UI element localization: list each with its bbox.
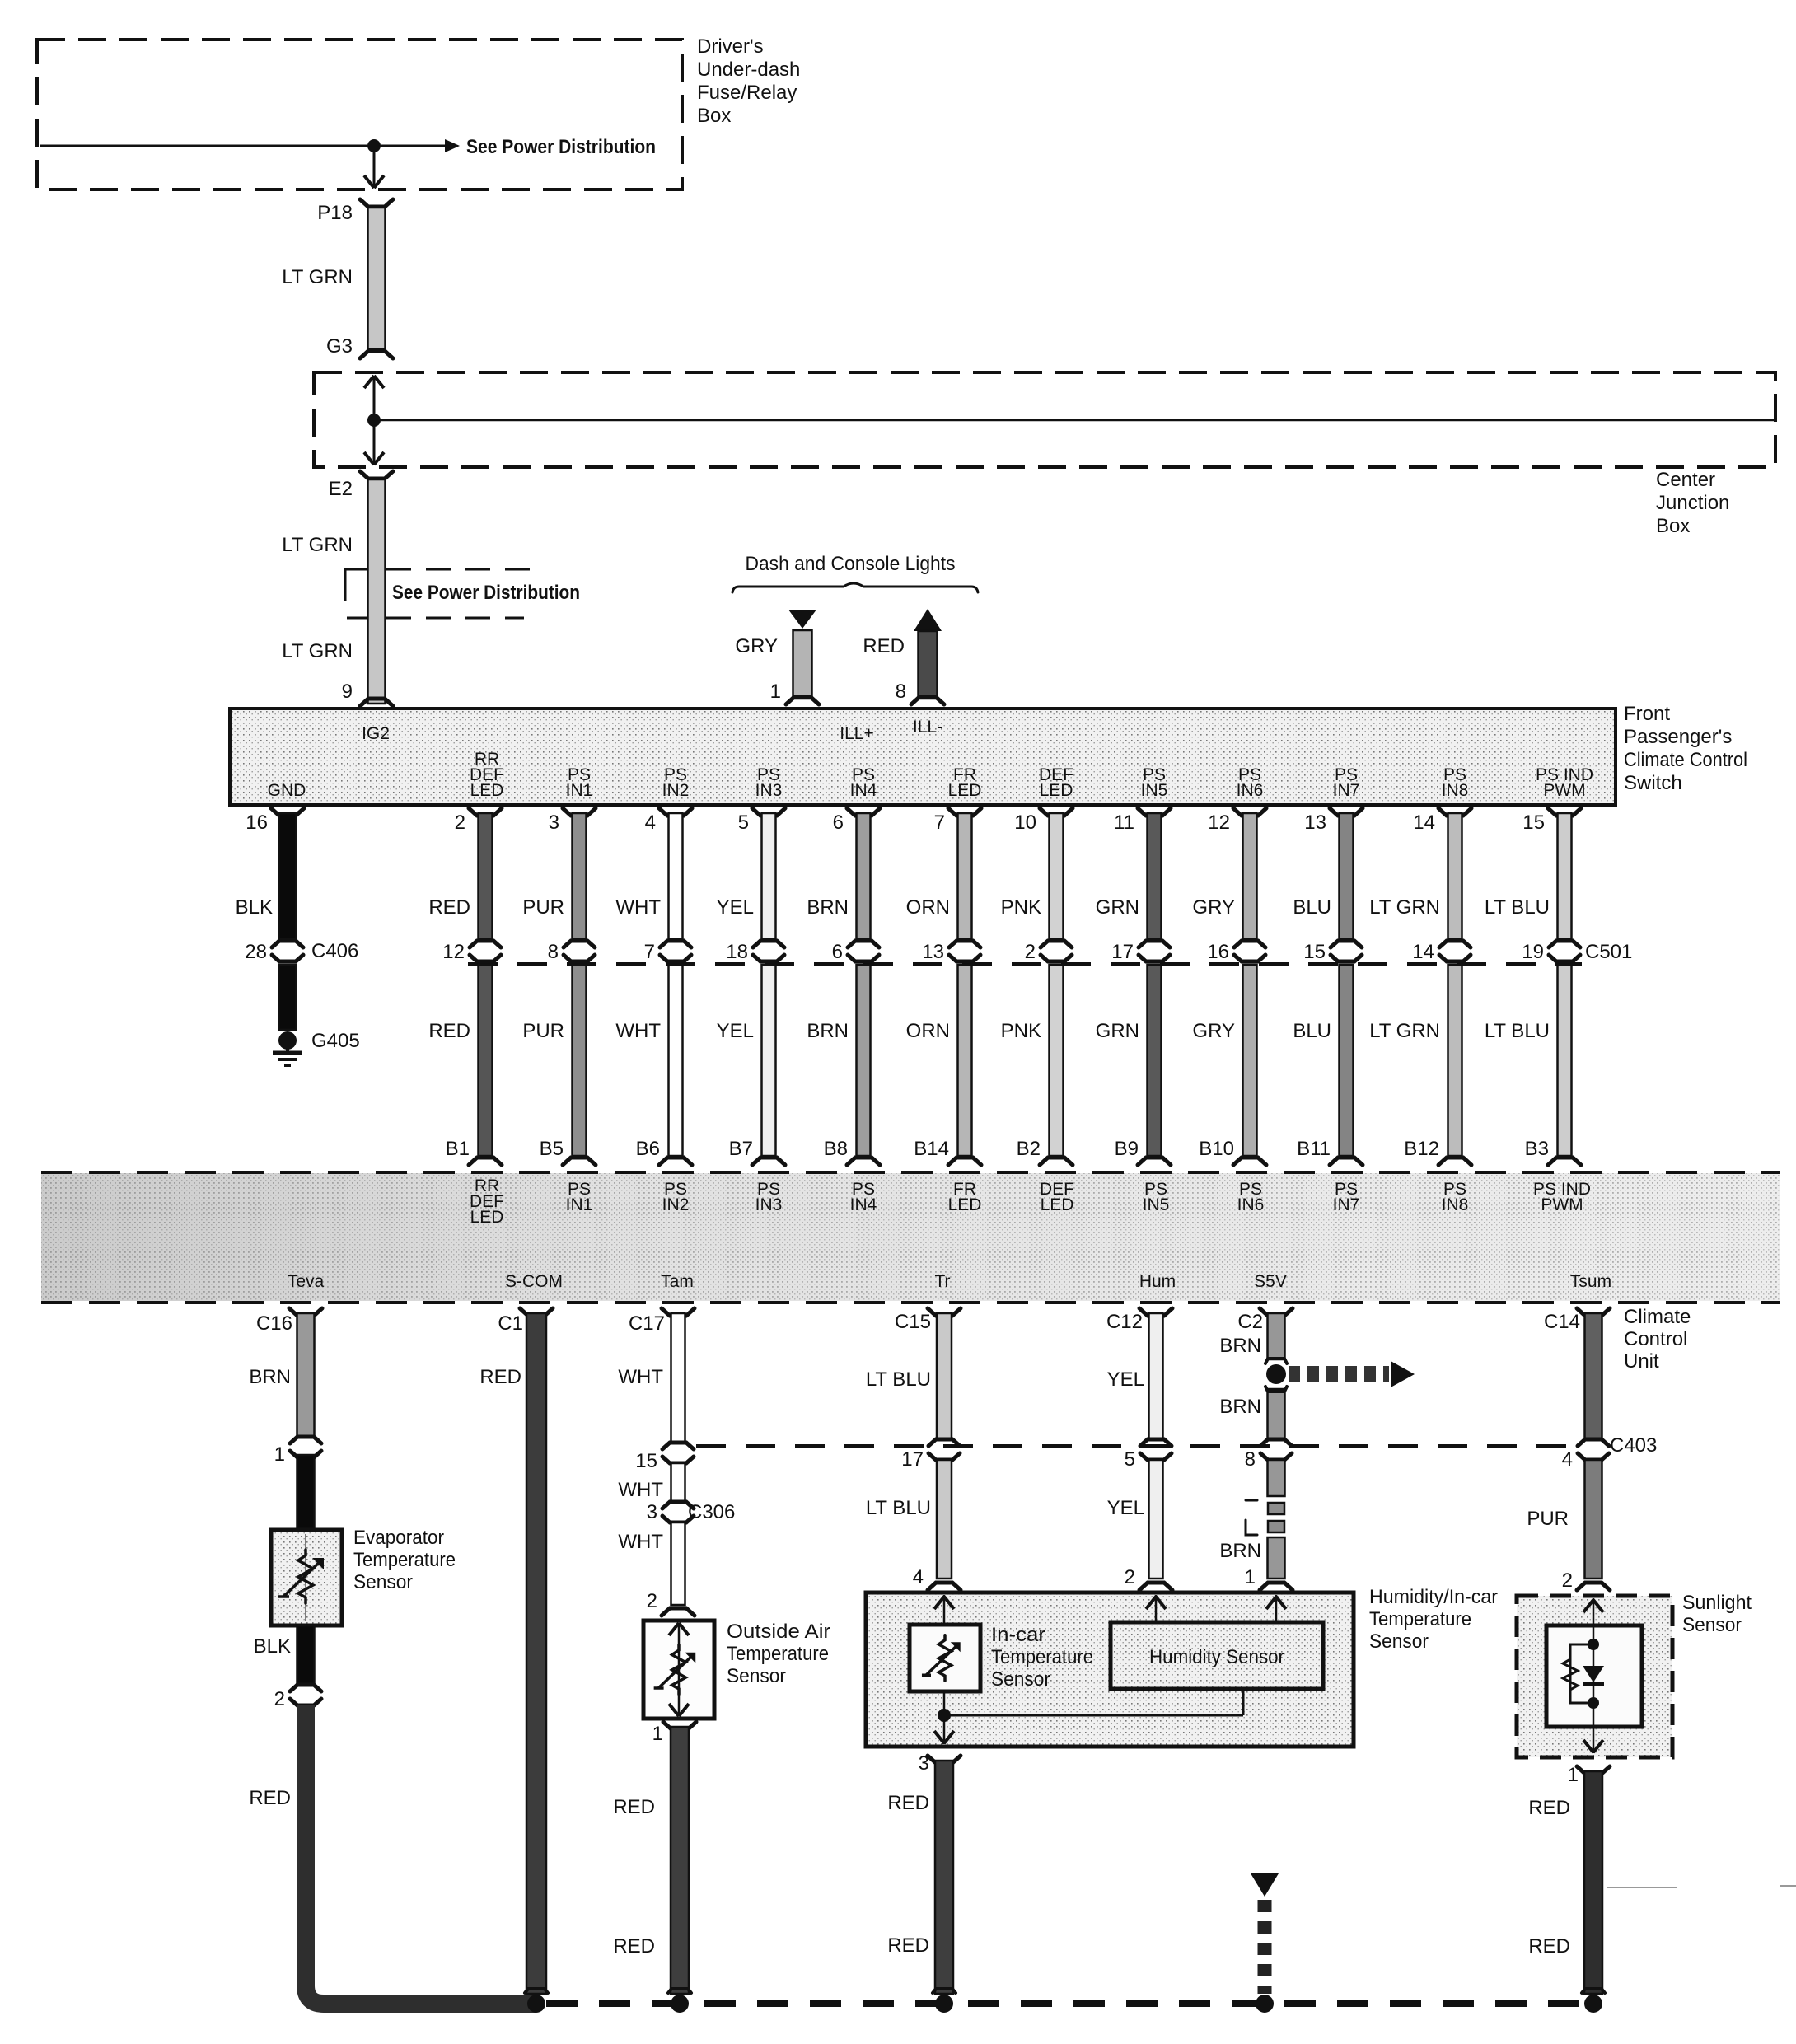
svg-text:5: 5	[738, 812, 749, 834]
svg-text:B5: B5	[540, 1138, 564, 1160]
svg-text:2: 2	[455, 812, 465, 834]
svg-text:BRN: BRN	[249, 1366, 291, 1388]
svg-text:Outside Air: Outside Air	[727, 1621, 830, 1643]
svg-text:RED: RED	[1528, 1935, 1570, 1957]
svg-text:Temperature: Temperature	[1369, 1608, 1471, 1630]
svg-text:GRN: GRN	[1096, 1020, 1139, 1042]
svg-text:2: 2	[1562, 1569, 1573, 1592]
svg-text:WHT: WHT	[618, 1366, 663, 1388]
svg-text:Tsum: Tsum	[1570, 1272, 1611, 1291]
svg-text:Box: Box	[1656, 515, 1690, 537]
svg-text:RED: RED	[249, 1787, 291, 1809]
svg-text:B8: B8	[824, 1138, 848, 1160]
svg-text:GRY: GRY	[1192, 896, 1235, 919]
svg-text:19: 19	[1522, 941, 1544, 963]
svg-text:6: 6	[832, 941, 843, 963]
svg-text:2: 2	[1025, 941, 1036, 963]
svg-text:LED: LED	[470, 1208, 504, 1227]
svg-text:4: 4	[1562, 1448, 1573, 1471]
svg-text:B10: B10	[1199, 1138, 1234, 1160]
svg-text:IN1: IN1	[566, 1195, 593, 1214]
svg-text:IN3: IN3	[755, 781, 783, 800]
svg-text:YEL: YEL	[1107, 1497, 1144, 1519]
svg-text:Teva: Teva	[288, 1272, 325, 1291]
svg-text:ILL-: ILL-	[913, 718, 942, 737]
svg-text:1: 1	[770, 681, 781, 703]
svg-text:Control: Control	[1624, 1328, 1687, 1350]
svg-text:S-COM: S-COM	[505, 1272, 563, 1291]
svg-text:B9: B9	[1115, 1138, 1139, 1160]
svg-text:Front: Front	[1624, 703, 1670, 725]
svg-text:Temperature: Temperature	[727, 1643, 829, 1665]
svg-text:Climate: Climate	[1624, 1306, 1691, 1328]
svg-text:12: 12	[1208, 812, 1230, 834]
svg-text:PNK: PNK	[1001, 1020, 1041, 1042]
svg-text:Junction: Junction	[1656, 492, 1729, 514]
svg-text:Sensor: Sensor	[1369, 1630, 1429, 1653]
svg-text:1: 1	[1245, 1566, 1256, 1588]
svg-text:YEL: YEL	[717, 896, 754, 919]
svg-text:IG2: IG2	[362, 724, 390, 743]
svg-text:RED: RED	[428, 896, 470, 919]
svg-text:12: 12	[442, 941, 465, 963]
svg-text:BRN: BRN	[1219, 1396, 1261, 1418]
svg-text:Dash and Console Lights: Dash and Console Lights	[746, 553, 956, 575]
svg-text:LT GRN: LT GRN	[282, 266, 353, 288]
svg-text:5: 5	[1125, 1448, 1135, 1471]
svg-text:B7: B7	[729, 1138, 753, 1160]
svg-text:IN8: IN8	[1442, 1195, 1469, 1214]
svg-text:B12: B12	[1404, 1138, 1439, 1160]
svg-text:BLK: BLK	[254, 1635, 291, 1658]
svg-text:C1: C1	[498, 1312, 523, 1335]
svg-text:BLU: BLU	[1293, 1020, 1331, 1042]
svg-text:WHT: WHT	[618, 1479, 663, 1501]
svg-text:IN5: IN5	[1143, 1195, 1170, 1214]
svg-text:IN8: IN8	[1442, 781, 1469, 800]
svg-text:C2: C2	[1237, 1311, 1263, 1333]
svg-text:8: 8	[548, 941, 559, 963]
svg-text:2: 2	[274, 1688, 285, 1710]
svg-text:Driver's: Driver's	[697, 35, 764, 58]
svg-text:16: 16	[1207, 941, 1229, 963]
svg-text:IN2: IN2	[662, 781, 690, 800]
svg-text:WHT: WHT	[615, 896, 661, 919]
svg-text:Switch: Switch	[1624, 772, 1682, 794]
svg-text:LT BLU: LT BLU	[866, 1497, 931, 1519]
svg-text:18: 18	[726, 941, 748, 963]
svg-text:RED: RED	[613, 1796, 655, 1818]
svg-text:Climate Control: Climate Control	[1624, 749, 1747, 771]
svg-text:Passenger's: Passenger's	[1624, 726, 1732, 748]
svg-text:9: 9	[342, 681, 353, 703]
svg-text:C501: C501	[1585, 941, 1632, 963]
svg-text:IN4: IN4	[850, 781, 877, 800]
svg-text:WHT: WHT	[618, 1531, 663, 1553]
svg-text:C406: C406	[311, 940, 358, 962]
svg-text:Sunlight: Sunlight	[1682, 1592, 1752, 1614]
svg-text:Sensor: Sensor	[353, 1571, 413, 1593]
svg-text:13: 13	[1304, 812, 1326, 834]
svg-text:IN7: IN7	[1333, 1195, 1360, 1214]
svg-text:LT BLU: LT BLU	[866, 1368, 931, 1391]
svg-text:Temperature: Temperature	[353, 1549, 456, 1571]
svg-text:S5V: S5V	[1254, 1272, 1287, 1291]
svg-text:RED: RED	[1528, 1797, 1570, 1819]
svg-text:8: 8	[1245, 1448, 1256, 1471]
svg-text:BRN: BRN	[1219, 1540, 1261, 1562]
svg-text:Sensor: Sensor	[1682, 1614, 1742, 1636]
svg-text:Hum: Hum	[1139, 1272, 1176, 1291]
svg-text:C306: C306	[688, 1501, 735, 1523]
svg-text:Fuse/Relay: Fuse/Relay	[697, 82, 797, 104]
svg-text:In-car: In-car	[991, 1624, 1045, 1646]
svg-text:1: 1	[652, 1723, 663, 1745]
svg-text:LT GRN: LT GRN	[282, 640, 353, 662]
svg-text:ILL+: ILL+	[840, 724, 873, 743]
svg-text:Sensor: Sensor	[727, 1665, 786, 1687]
svg-text:GRN: GRN	[1096, 896, 1139, 919]
svg-text:LT GRN: LT GRN	[282, 534, 353, 556]
svg-text:B1: B1	[446, 1138, 470, 1160]
svg-text:C17: C17	[629, 1312, 665, 1335]
svg-text:B11: B11	[1297, 1138, 1331, 1160]
svg-text:GRY: GRY	[735, 635, 778, 657]
svg-text:C15: C15	[895, 1311, 931, 1333]
svg-text:RED: RED	[479, 1366, 521, 1388]
svg-text:10: 10	[1014, 812, 1036, 834]
svg-text:8: 8	[896, 681, 906, 703]
svg-text:RED: RED	[863, 635, 905, 657]
svg-text:28: 28	[245, 941, 267, 963]
svg-text:RED: RED	[887, 1934, 929, 1957]
svg-text:PWM: PWM	[1541, 1195, 1583, 1214]
svg-text:14: 14	[1413, 812, 1435, 834]
svg-text:YEL: YEL	[1107, 1368, 1144, 1391]
svg-text:IN7: IN7	[1333, 781, 1360, 800]
svg-text:ORN: ORN	[906, 896, 950, 919]
svg-text:BLK: BLK	[236, 896, 273, 919]
svg-text:PWM: PWM	[1543, 781, 1585, 800]
svg-text:Tam: Tam	[661, 1272, 694, 1291]
svg-text:16: 16	[246, 812, 268, 834]
svg-text:WHT: WHT	[615, 1020, 661, 1042]
svg-text:Humidity Sensor: Humidity Sensor	[1149, 1646, 1284, 1668]
svg-text:B3: B3	[1525, 1138, 1549, 1160]
svg-text:E2: E2	[329, 478, 353, 500]
svg-text:C16: C16	[256, 1312, 292, 1335]
svg-text:IN1: IN1	[566, 781, 593, 800]
svg-text:B2: B2	[1017, 1138, 1041, 1160]
svg-text:PUR: PUR	[522, 896, 564, 919]
svg-text:4: 4	[645, 812, 656, 834]
svg-text:4: 4	[913, 1566, 924, 1588]
svg-text:B6: B6	[636, 1138, 660, 1160]
svg-text:2: 2	[647, 1590, 657, 1612]
svg-text:Evaporator: Evaporator	[353, 1527, 444, 1549]
svg-text:C403: C403	[1610, 1434, 1657, 1457]
svg-text:See Power Distribution: See Power Distribution	[392, 582, 580, 604]
svg-text:15: 15	[1303, 941, 1326, 963]
svg-text:LT GRN: LT GRN	[1369, 1020, 1440, 1042]
svg-text:G405: G405	[311, 1030, 360, 1052]
svg-text:BRN: BRN	[1219, 1335, 1261, 1357]
svg-text:See Power Distribution: See Power Distribution	[466, 136, 656, 158]
svg-text:15: 15	[635, 1450, 657, 1472]
svg-text:RED: RED	[613, 1935, 655, 1957]
svg-text:RED: RED	[887, 1792, 929, 1814]
svg-text:C14: C14	[1544, 1311, 1580, 1333]
svg-text:3: 3	[647, 1501, 657, 1523]
svg-text:IN2: IN2	[662, 1195, 690, 1214]
svg-text:7: 7	[644, 941, 655, 963]
svg-text:LED: LED	[948, 1195, 982, 1214]
svg-text:LED: LED	[1041, 1195, 1074, 1214]
svg-text:11: 11	[1114, 812, 1134, 834]
svg-text:IN6: IN6	[1237, 781, 1264, 800]
svg-text:6: 6	[833, 812, 844, 834]
svg-text:Unit: Unit	[1624, 1350, 1659, 1373]
svg-text:IN3: IN3	[755, 1195, 783, 1214]
svg-text:13: 13	[922, 941, 944, 963]
svg-text:Humidity/In-car: Humidity/In-car	[1369, 1586, 1498, 1608]
svg-text:LT GRN: LT GRN	[1369, 896, 1440, 919]
svg-text:1: 1	[274, 1443, 285, 1466]
svg-text:LED: LED	[948, 781, 982, 800]
svg-text:LT BLU: LT BLU	[1485, 896, 1550, 919]
svg-text:ORN: ORN	[906, 1020, 950, 1042]
svg-text:17: 17	[901, 1448, 924, 1471]
svg-text:15: 15	[1522, 812, 1545, 834]
svg-text:7: 7	[934, 812, 945, 834]
svg-text:C12: C12	[1106, 1311, 1143, 1333]
svg-text:GND: GND	[268, 781, 306, 800]
svg-text:PUR: PUR	[1527, 1508, 1569, 1530]
svg-text:PUR: PUR	[522, 1020, 564, 1042]
svg-text:LED: LED	[470, 781, 504, 800]
svg-text:Center: Center	[1656, 469, 1715, 491]
svg-text:Box: Box	[697, 105, 731, 127]
svg-text:P18: P18	[317, 202, 353, 224]
svg-text:IN5: IN5	[1141, 781, 1168, 800]
svg-text:YEL: YEL	[717, 1020, 754, 1042]
svg-text:2: 2	[1125, 1566, 1135, 1588]
svg-text:Sensor: Sensor	[991, 1668, 1050, 1691]
svg-text:Tr: Tr	[934, 1272, 950, 1291]
svg-text:IN4: IN4	[850, 1195, 877, 1214]
svg-text:RED: RED	[428, 1020, 470, 1042]
svg-text:BLU: BLU	[1293, 896, 1331, 919]
svg-text:PNK: PNK	[1001, 896, 1041, 919]
svg-text:GRY: GRY	[1192, 1020, 1235, 1042]
svg-text:Under-dash: Under-dash	[697, 58, 800, 81]
svg-text:3: 3	[549, 812, 559, 834]
svg-text:17: 17	[1111, 941, 1134, 963]
svg-text:BRN: BRN	[807, 1020, 849, 1042]
svg-text:B14: B14	[914, 1138, 949, 1160]
svg-text:LT BLU: LT BLU	[1485, 1020, 1550, 1042]
svg-text:LED: LED	[1040, 781, 1073, 800]
svg-text:14: 14	[1412, 941, 1434, 963]
svg-text:IN6: IN6	[1237, 1195, 1265, 1214]
svg-text:BRN: BRN	[807, 896, 849, 919]
svg-text:Temperature: Temperature	[991, 1646, 1093, 1668]
svg-text:G3: G3	[326, 335, 353, 358]
